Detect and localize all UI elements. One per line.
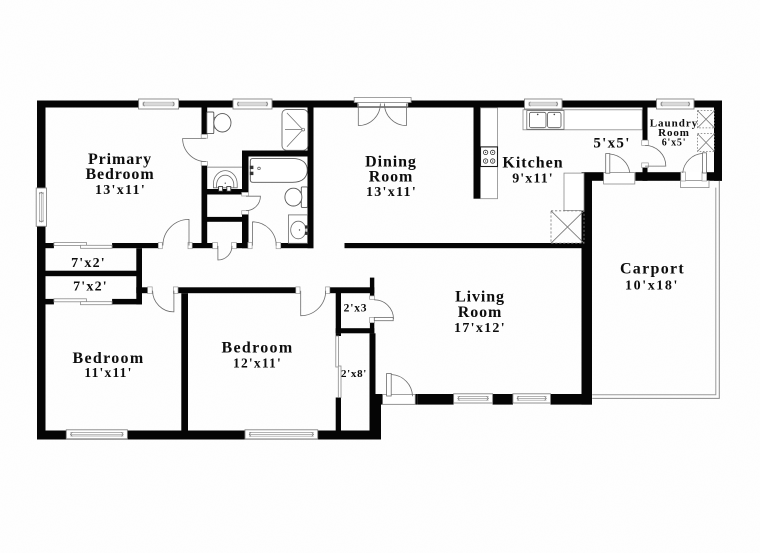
svg-text:Bedroom: Bedroom: [222, 340, 294, 357]
svg-text:11'x11': 11'x11': [84, 365, 132, 380]
svg-text:17'x12': 17'x12': [454, 321, 506, 336]
svg-text:5'x5': 5'x5': [593, 136, 630, 152]
svg-text:7'x2': 7'x2': [71, 256, 106, 271]
svg-text:Room: Room: [369, 169, 413, 186]
svg-text:9'x11': 9'x11': [512, 172, 554, 187]
svg-text:13'x11': 13'x11': [95, 183, 146, 198]
svg-text:Kitchen: Kitchen: [502, 155, 563, 172]
svg-text:6'x5': 6'x5': [662, 138, 687, 149]
svg-text:2'x8': 2'x8': [341, 368, 367, 380]
svg-text:Room: Room: [458, 304, 502, 321]
svg-text:7'x2': 7'x2': [73, 280, 108, 295]
svg-text:Living: Living: [455, 289, 505, 306]
svg-text:2'x3: 2'x3: [344, 302, 368, 314]
svg-text:Carport: Carport: [620, 261, 685, 278]
svg-text:Bedroom: Bedroom: [85, 166, 154, 183]
svg-text:12'x11': 12'x11': [233, 356, 282, 371]
svg-text:10'x18': 10'x18': [625, 279, 679, 294]
svg-text:13'x11': 13'x11': [366, 185, 417, 200]
